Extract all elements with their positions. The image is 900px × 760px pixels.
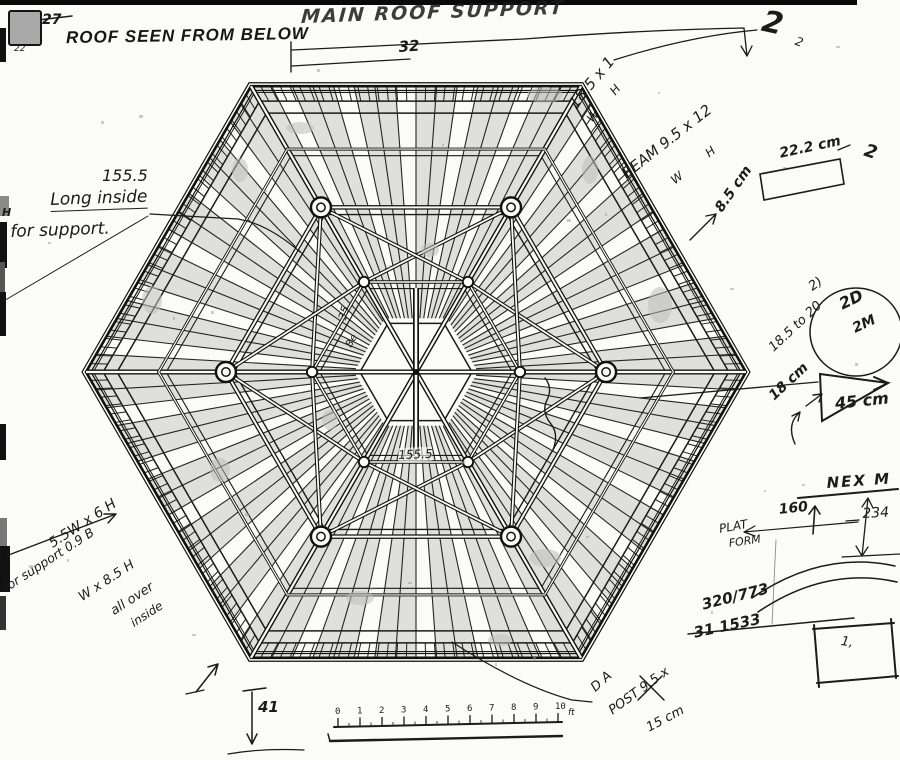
roof-plan-drawing: 012345678910 ft <box>0 0 900 760</box>
value-160: 160 <box>778 499 809 518</box>
scale-tick-label: 4 <box>423 705 428 715</box>
left-note-line2: for support. <box>10 219 110 242</box>
scanned-roof-plan-page: 012345678910 ft 27 22 ROOF SEEN FROM BEL… <box>0 0 900 760</box>
central-column <box>413 288 419 456</box>
scale-tick-label: 0 <box>335 707 340 717</box>
left-margin-mark: H <box>2 206 11 219</box>
scale-unit-label: ft <box>568 708 575 718</box>
left-note-value: 155.5 <box>102 166 148 185</box>
scale-tick-label: 8 <box>511 703 516 713</box>
page-number: 27 <box>42 12 61 28</box>
title-dimension-value: 32 <box>398 37 420 56</box>
inner-beam-155: 155.5 <box>398 447 433 462</box>
scale-tick-label: 6 <box>467 704 472 714</box>
square-inner-mark: 1, <box>840 634 854 651</box>
roof-structure <box>14 40 858 666</box>
drawing-title-stamp: ROOF SEEN FROM BELOW <box>66 24 309 48</box>
corner-stamp-box <box>8 10 42 46</box>
scale-tick-label: 9 <box>533 703 538 713</box>
dim-41: 41 <box>258 698 279 716</box>
value-234: 234 <box>862 505 890 522</box>
left-note-line1: Long inside <box>50 187 148 212</box>
scale-tick-label: 5 <box>445 705 450 715</box>
scale-tick-label: 7 <box>489 704 494 714</box>
scale-tick-label: 2 <box>379 706 384 716</box>
scale-tick-label: 10 <box>555 702 566 712</box>
scale-tick-label: 3 <box>401 705 406 715</box>
scale-tick-label: 1 <box>357 706 362 716</box>
page-number-small: 22 <box>14 44 25 54</box>
